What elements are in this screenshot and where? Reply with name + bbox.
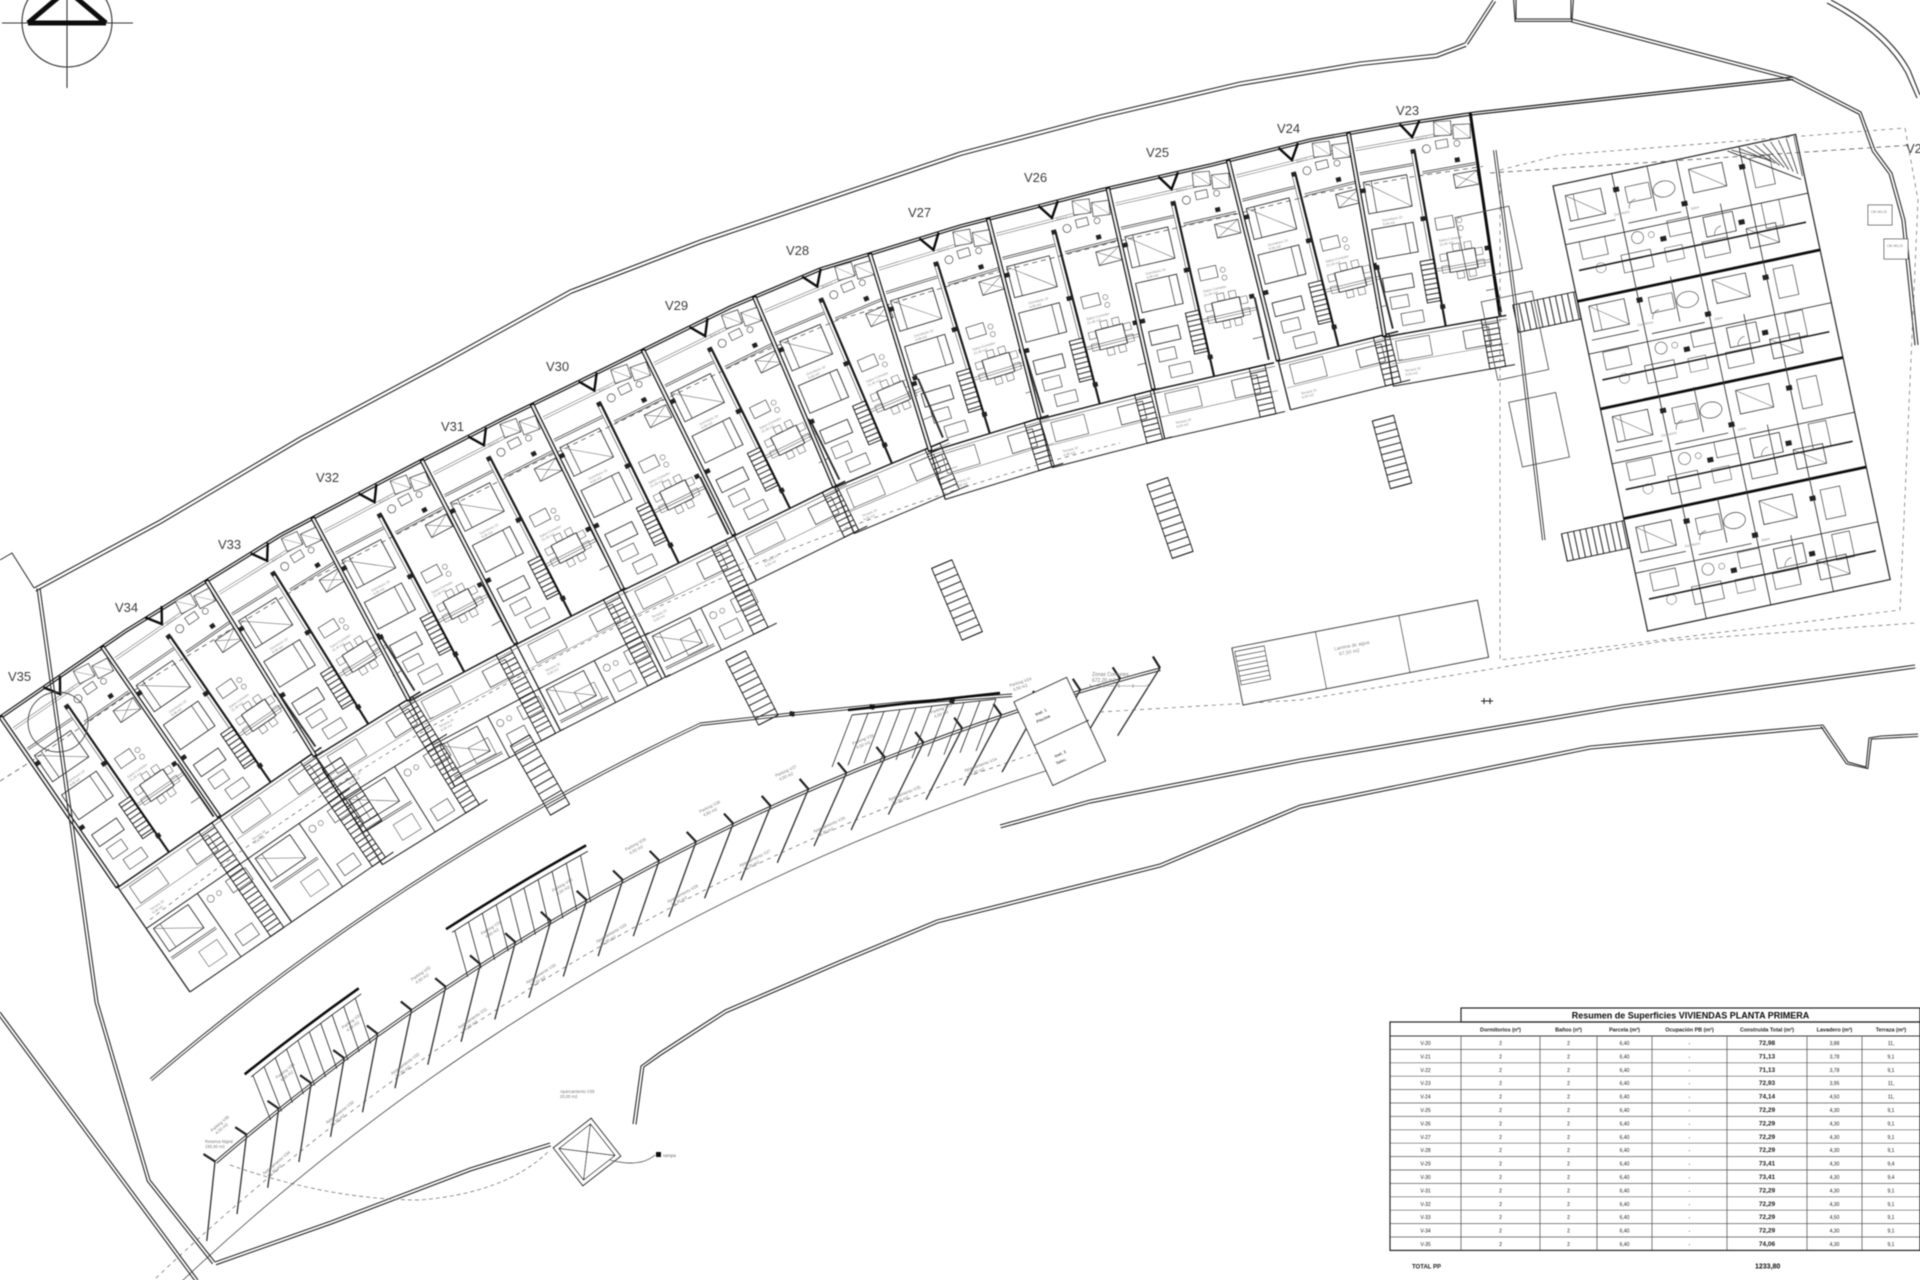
svg-text:9,1: 9,1	[1888, 1229, 1895, 1235]
svg-text:2: 2	[1567, 1188, 1570, 1194]
svg-text:V-31: V-31	[1420, 1188, 1431, 1194]
svg-text:6,40: 6,40	[1620, 1162, 1630, 1168]
svg-text:2: 2	[1567, 1041, 1570, 1047]
svg-text:6,40: 6,40	[1620, 1215, 1630, 1221]
svg-text:2: 2	[1499, 1175, 1502, 1181]
svg-text:4,30: 4,30	[1830, 1148, 1840, 1154]
svg-text:4,30: 4,30	[1830, 1175, 1840, 1181]
svg-text:2: 2	[1567, 1108, 1570, 1114]
svg-text:6,40: 6,40	[1620, 1148, 1630, 1154]
svg-text:71,13: 71,13	[1759, 1067, 1776, 1074]
svg-text:72,29: 72,29	[1759, 1147, 1776, 1154]
svg-text:2: 2	[1499, 1108, 1502, 1114]
svg-text:4,30: 4,30	[1830, 1135, 1840, 1141]
svg-text:V-30: V-30	[1420, 1175, 1431, 1181]
svg-text:2: 2	[1567, 1121, 1570, 1127]
svg-text:Construida Total (m²): Construida Total (m²)	[1740, 1028, 1794, 1034]
svg-text:74,06: 74,06	[1759, 1241, 1776, 1248]
svg-text:2: 2	[1499, 1242, 1502, 1248]
svg-text:672,20 m2: 672,20 m2	[1092, 678, 1116, 684]
svg-text:V31: V31	[441, 419, 464, 434]
svg-text:2: 2	[1567, 1054, 1570, 1060]
svg-text:2: 2	[1567, 1081, 1570, 1087]
svg-text:V-20: V-20	[1420, 1041, 1431, 1047]
svg-text:72,29: 72,29	[1759, 1228, 1776, 1235]
svg-text:9,4: 9,4	[1888, 1162, 1895, 1168]
svg-text:6,40: 6,40	[1620, 1121, 1630, 1127]
svg-text:2: 2	[1499, 1202, 1502, 1208]
svg-text:V26: V26	[1024, 170, 1047, 185]
svg-text:V-32: V-32	[1420, 1202, 1431, 1208]
svg-text:V-26: V-26	[1420, 1121, 1431, 1127]
svg-text:3,88: 3,88	[1830, 1041, 1840, 1047]
svg-text:V33: V33	[218, 537, 241, 552]
svg-text:V27: V27	[908, 205, 931, 220]
svg-text:2: 2	[1499, 1081, 1502, 1087]
svg-text:V-34: V-34	[1420, 1229, 1431, 1235]
svg-text:4,30: 4,30	[1830, 1162, 1840, 1168]
svg-text:V-21: V-21	[1420, 1054, 1431, 1060]
svg-text:3,95: 3,95	[1830, 1081, 1840, 1087]
svg-text:4,30: 4,30	[1830, 1108, 1840, 1114]
svg-text:2: 2	[1567, 1148, 1570, 1154]
svg-text:6,40: 6,40	[1620, 1188, 1630, 1194]
svg-text:6,40: 6,40	[1620, 1054, 1630, 1060]
svg-text:CB HELIX: CB HELIX	[1871, 210, 1888, 214]
svg-text:2: 2	[1499, 1041, 1502, 1047]
svg-text:rampa: rampa	[663, 1153, 676, 1158]
svg-text:4,30: 4,30	[1830, 1188, 1840, 1194]
svg-text:V22: V22	[1906, 141, 1920, 156]
svg-text:9,1: 9,1	[1888, 1215, 1895, 1221]
svg-text:2: 2	[1567, 1095, 1570, 1101]
svg-text:V30: V30	[546, 359, 569, 374]
svg-text:71,13: 71,13	[1759, 1053, 1776, 1060]
svg-text:6,40: 6,40	[1620, 1229, 1630, 1235]
svg-text:72,98: 72,98	[1759, 1040, 1776, 1047]
svg-text:4,50: 4,50	[1830, 1215, 1840, 1221]
svg-text:2: 2	[1499, 1162, 1502, 1168]
svg-text:72,29: 72,29	[1759, 1187, 1776, 1194]
svg-text:74,14: 74,14	[1759, 1094, 1776, 1101]
svg-text:V28: V28	[786, 243, 809, 258]
svg-text:4,50: 4,50	[1830, 1095, 1840, 1101]
svg-text:2: 2	[1499, 1188, 1502, 1194]
svg-text:72,29: 72,29	[1759, 1214, 1776, 1221]
svg-text:2: 2	[1499, 1215, 1502, 1221]
svg-text:2: 2	[1567, 1162, 1570, 1168]
svg-text:9,1: 9,1	[1888, 1068, 1895, 1074]
svg-text:2: 2	[1499, 1054, 1502, 1060]
svg-text:V35: V35	[8, 669, 31, 684]
svg-text:6,40: 6,40	[1620, 1108, 1630, 1114]
svg-text:V-28: V-28	[1420, 1148, 1431, 1154]
svg-text:V32: V32	[316, 470, 339, 485]
svg-text:2: 2	[1567, 1175, 1570, 1181]
svg-text:73,41: 73,41	[1759, 1161, 1776, 1168]
svg-text:V-23: V-23	[1420, 1081, 1431, 1087]
svg-text:11,: 11,	[1888, 1081, 1895, 1087]
svg-text:4,30: 4,30	[1830, 1229, 1840, 1235]
svg-text:V-33: V-33	[1420, 1215, 1431, 1221]
svg-text:9,1: 9,1	[1888, 1121, 1895, 1127]
svg-text:V29: V29	[665, 298, 688, 313]
svg-text:2: 2	[1499, 1121, 1502, 1127]
svg-text:2: 2	[1567, 1242, 1570, 1248]
svg-text:6,40: 6,40	[1620, 1135, 1630, 1141]
svg-text:2: 2	[1567, 1068, 1570, 1074]
svg-text:V25: V25	[1146, 145, 1169, 160]
svg-text:Ocupación PB (m²): Ocupación PB (m²)	[1665, 1028, 1714, 1034]
svg-text:Baños (nº): Baños (nº)	[1555, 1028, 1582, 1034]
svg-text:V-22: V-22	[1420, 1068, 1431, 1074]
svg-text:4,30: 4,30	[1830, 1242, 1840, 1248]
svg-text:11,: 11,	[1888, 1095, 1895, 1101]
svg-text:Dormitorios (nº): Dormitorios (nº)	[1480, 1028, 1521, 1034]
svg-text:72,29: 72,29	[1759, 1107, 1776, 1114]
svg-text:9,1: 9,1	[1888, 1202, 1895, 1208]
svg-text:73,41: 73,41	[1759, 1174, 1776, 1181]
svg-text:2: 2	[1499, 1229, 1502, 1235]
svg-text:6,40: 6,40	[1620, 1095, 1630, 1101]
svg-text:TOTAL PP: TOTAL PP	[1412, 1264, 1441, 1270]
svg-text:72,29: 72,29	[1759, 1134, 1776, 1141]
svg-text:Parcela (m²): Parcela (m²)	[1609, 1028, 1640, 1034]
svg-text:2: 2	[1499, 1148, 1502, 1154]
svg-text:2: 2	[1567, 1215, 1570, 1221]
svg-text:6,40: 6,40	[1620, 1175, 1630, 1181]
svg-text:1233,80: 1233,80	[1755, 1263, 1780, 1270]
svg-text:V-35: V-35	[1420, 1242, 1431, 1248]
svg-text:Resumen de Superficies VIVIEND: Resumen de Superficies VIVIENDAS PLANTA …	[1572, 1011, 1810, 1021]
svg-text:2: 2	[1567, 1135, 1570, 1141]
svg-text:6,40: 6,40	[1620, 1081, 1630, 1087]
svg-text:Lavadero (m²): Lavadero (m²)	[1817, 1028, 1853, 1034]
svg-text:6,40: 6,40	[1620, 1242, 1630, 1248]
svg-text:4,30: 4,30	[1830, 1202, 1840, 1208]
svg-text:9,1: 9,1	[1888, 1148, 1895, 1154]
svg-text:2: 2	[1499, 1068, 1502, 1074]
svg-text:V23: V23	[1396, 103, 1419, 118]
svg-text:V-24: V-24	[1420, 1095, 1431, 1101]
svg-text:3,78: 3,78	[1830, 1054, 1840, 1060]
svg-text:2: 2	[1567, 1202, 1570, 1208]
svg-text:11,: 11,	[1888, 1041, 1895, 1047]
svg-text:20,00 m2: 20,00 m2	[560, 1094, 578, 1099]
svg-text:9,1: 9,1	[1888, 1242, 1895, 1248]
svg-text:6,40: 6,40	[1620, 1041, 1630, 1047]
svg-text:6,40: 6,40	[1620, 1068, 1630, 1074]
svg-text:Terraza (m²): Terraza (m²)	[1876, 1028, 1907, 1034]
svg-text:V34: V34	[115, 600, 138, 615]
svg-text:6,40: 6,40	[1620, 1202, 1630, 1208]
svg-text:150,40 m2: 150,40 m2	[205, 1144, 225, 1149]
svg-text:2: 2	[1567, 1229, 1570, 1235]
svg-text:72,29: 72,29	[1759, 1201, 1776, 1208]
svg-text:V24: V24	[1277, 121, 1300, 136]
svg-text:9,1: 9,1	[1888, 1054, 1895, 1060]
svg-text:4,30: 4,30	[1830, 1121, 1840, 1127]
svg-text:9,4: 9,4	[1888, 1175, 1895, 1181]
svg-text:72,93: 72,93	[1759, 1080, 1776, 1087]
svg-text:V-27: V-27	[1420, 1135, 1431, 1141]
svg-text:2: 2	[1499, 1095, 1502, 1101]
svg-text:CB HELIX: CB HELIX	[1887, 244, 1904, 248]
svg-text:V-29: V-29	[1420, 1162, 1431, 1168]
svg-text:9,1: 9,1	[1888, 1135, 1895, 1141]
svg-text:2: 2	[1499, 1135, 1502, 1141]
svg-text:9,1: 9,1	[1888, 1108, 1895, 1114]
svg-text:72,29: 72,29	[1759, 1120, 1776, 1127]
svg-text:3,78: 3,78	[1830, 1068, 1840, 1074]
svg-text:9,1: 9,1	[1888, 1188, 1895, 1194]
svg-text:V-25: V-25	[1420, 1108, 1431, 1114]
